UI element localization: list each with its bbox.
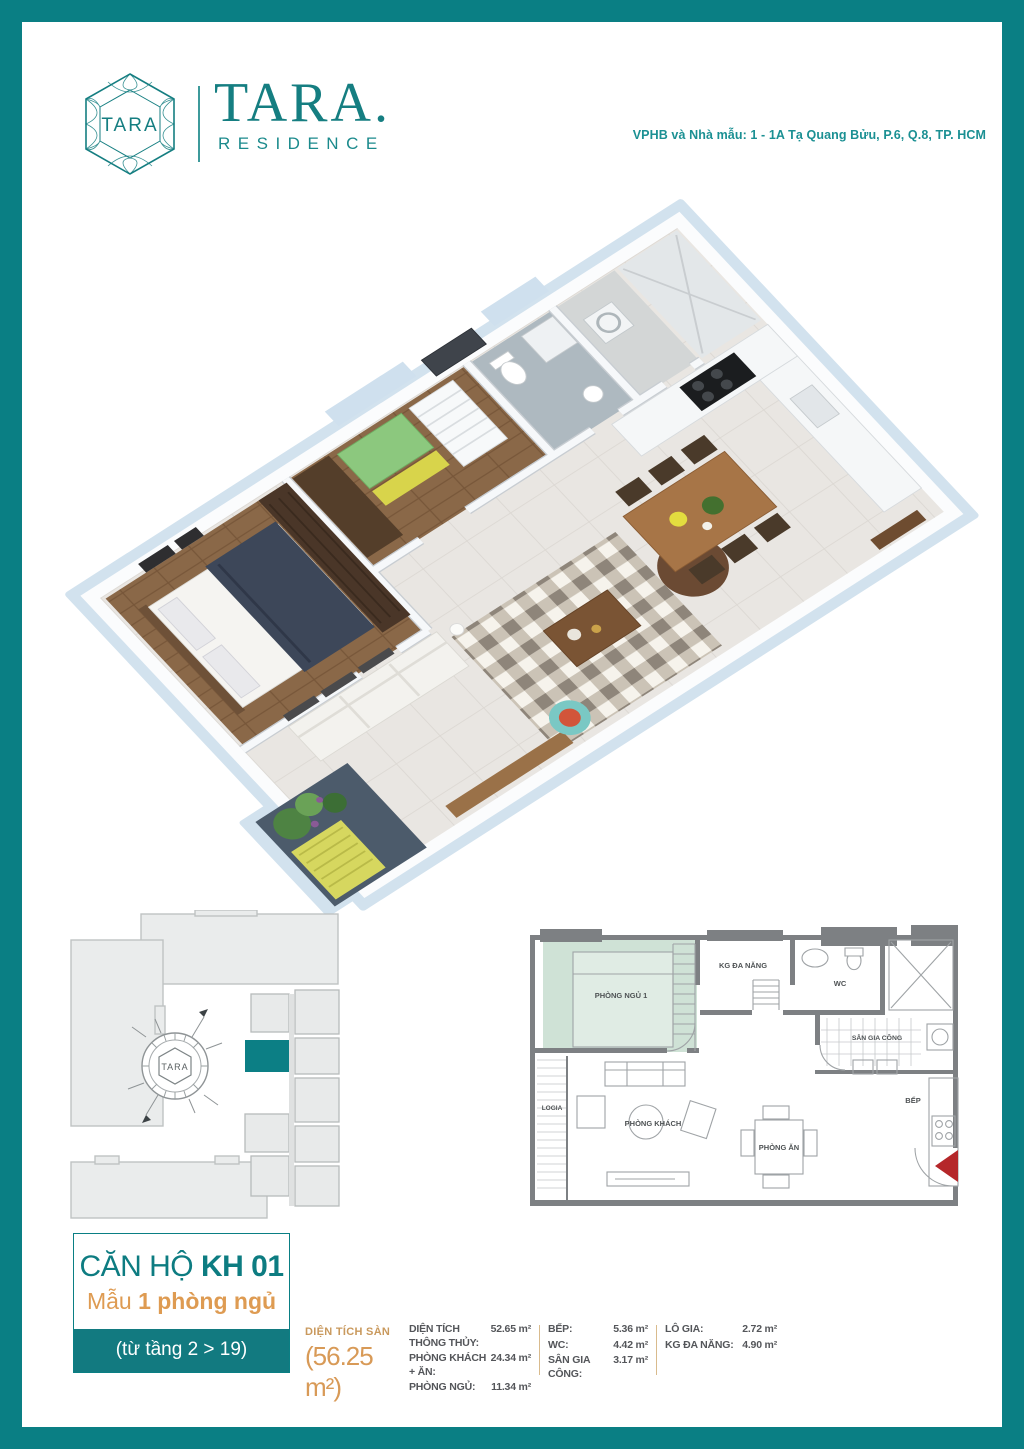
label-dining: PHÒNG ĂN	[759, 1143, 799, 1152]
sofa-2d	[605, 1062, 685, 1086]
wall-header-block	[707, 930, 783, 941]
areas-divider	[656, 1325, 657, 1375]
wall-header-block	[821, 927, 897, 946]
apartment-3d	[40, 189, 980, 914]
armchair-2d	[681, 1101, 716, 1139]
wall-header-block	[540, 929, 602, 942]
unit-title-prefix: CĂN HỘ	[79, 1250, 201, 1283]
area-row: WC:4.42 m²	[548, 1339, 648, 1353]
site-block-bottom	[71, 1162, 267, 1218]
area-label: DIỆN TÍCH THÔNG THỦY:	[409, 1323, 491, 1350]
area-row: BẾP:5.36 m²	[548, 1323, 648, 1337]
area-row: PHÒNG NGỦ:11.34 m²	[409, 1381, 531, 1395]
area-row: KG ĐA NĂNG:4.90 m²	[665, 1339, 777, 1353]
stairs-icon	[753, 980, 779, 1010]
areas-column-1: DIỆN TÍCH THÔNG THỦY:52.65 m² PHÒNG KHÁC…	[409, 1323, 531, 1395]
brochure-page: TARA TARA. RESIDENCE VPHB và Nhà mẫu: 1 …	[0, 0, 1024, 1449]
wc-sink-2d	[802, 949, 828, 967]
area-row: PHÒNG KHÁCH + ĂN:24.34 m²	[409, 1352, 531, 1379]
site-block-top	[141, 914, 338, 984]
entry-arrow	[935, 1150, 958, 1182]
label-service: SÂN GIA CÔNG	[852, 1033, 902, 1042]
site-block-left	[71, 940, 163, 1126]
label-logia: LOGIA	[542, 1105, 563, 1112]
area-value: 4.42 m²	[613, 1339, 648, 1353]
brand-wordmark-text: TARA.	[214, 74, 391, 132]
area-value: 52.65 m²	[491, 1323, 531, 1350]
key-plan	[245, 990, 339, 1206]
area-value: 24.34 m²	[491, 1352, 531, 1379]
wall-bottom	[530, 1200, 958, 1206]
unit-title-code: KH 01	[201, 1250, 284, 1283]
door-arc-service	[820, 1045, 845, 1070]
areas-column-2: BẾP:5.36 m² WC:4.42 m² SÂN GIA CÔNG:3.17…	[548, 1323, 648, 1381]
site-plan: TARA	[55, 910, 340, 1220]
area-label: PHÒNG NGỦ:	[409, 1381, 475, 1395]
stove-2d	[932, 1116, 955, 1146]
brand-wordmark: TARA. RESIDENCE	[214, 74, 391, 154]
unit-subtitle: Mẫu 1 phòng ngủ	[74, 1288, 289, 1315]
area-value: 3.17 m²	[613, 1354, 648, 1381]
compass-label: TARA	[161, 1062, 188, 1072]
area-label: KG ĐA NĂNG:	[665, 1339, 734, 1353]
gross-area: DIỆN TÍCH SÀN (56.25 m²)	[305, 1323, 409, 1403]
label-bedroom: PHÒNG NGỦ 1	[595, 991, 648, 1000]
floor-range-bar: (từ tầng 2 > 19)	[74, 1329, 289, 1372]
area-row: LÔ GIA:2.72 m²	[665, 1323, 777, 1337]
wall-right-lower	[953, 1186, 958, 1206]
washer-2d	[927, 1024, 953, 1050]
wc-toilet-2d	[845, 948, 863, 970]
area-label: SÂN GIA CÔNG:	[548, 1354, 613, 1381]
area-value: 5.36 m²	[613, 1323, 648, 1337]
site-block-top-tab	[195, 910, 257, 916]
area-value: 2.72 m²	[742, 1323, 777, 1337]
area-value: 11.34 m²	[491, 1381, 531, 1395]
area-row: SÂN GIA CÔNG:3.17 m²	[548, 1354, 648, 1381]
gross-area-value: (56.25 m²)	[305, 1341, 409, 1403]
label-wc: WC	[834, 979, 847, 988]
label-kitchen: BẾP	[905, 1095, 920, 1105]
area-label: PHÒNG KHÁCH + ĂN:	[409, 1352, 491, 1379]
area-row: DIỆN TÍCH THÔNG THỦY:52.65 m²	[409, 1323, 531, 1350]
label-multi: KG ĐA NĂNG	[719, 961, 767, 970]
unit-subtitle-prefix: Mẫu	[87, 1288, 138, 1314]
gross-area-label: DIỆN TÍCH SÀN	[305, 1326, 409, 1338]
areas-divider	[539, 1325, 540, 1375]
showroom-address: VPHB và Nhà mẫu: 1 - 1A Tạ Quang Bửu, P.…	[633, 128, 986, 142]
render-3d-floorplan	[40, 148, 980, 914]
unit-info-card: CĂN HỘ KH 01 Mẫu 1 phòng ngủ (từ tầng 2 …	[73, 1233, 290, 1373]
emblem-text: TARA	[101, 115, 158, 136]
unit-subtitle-bold: 1 phòng ngủ	[138, 1288, 276, 1314]
highlighted-unit-kh01	[245, 1040, 289, 1072]
area-value: 4.90 m²	[742, 1339, 777, 1353]
areas-column-3: LÔ GIA:2.72 m² KG ĐA NĂNG:4.90 m²	[665, 1323, 777, 1352]
floor-plan-2d: PHÒNG NGỦ 1 KG ĐA NĂNG WC SÂN GIA CÔNG L…	[515, 920, 965, 1225]
area-label: LÔ GIA:	[665, 1323, 703, 1337]
lounge-chair-2d	[577, 1096, 605, 1128]
compass-arrow-ne	[199, 1009, 208, 1017]
label-living: PHÒNG KHÁCH	[625, 1119, 682, 1128]
area-label: WC:	[548, 1339, 568, 1353]
areas-table: DIỆN TÍCH SÀN (56.25 m²) DIỆN TÍCH THÔNG…	[305, 1323, 777, 1403]
wall-left	[530, 935, 535, 1206]
unit-title: CĂN HỘ KH 01	[74, 1250, 289, 1284]
area-label: BẾP:	[548, 1323, 572, 1337]
